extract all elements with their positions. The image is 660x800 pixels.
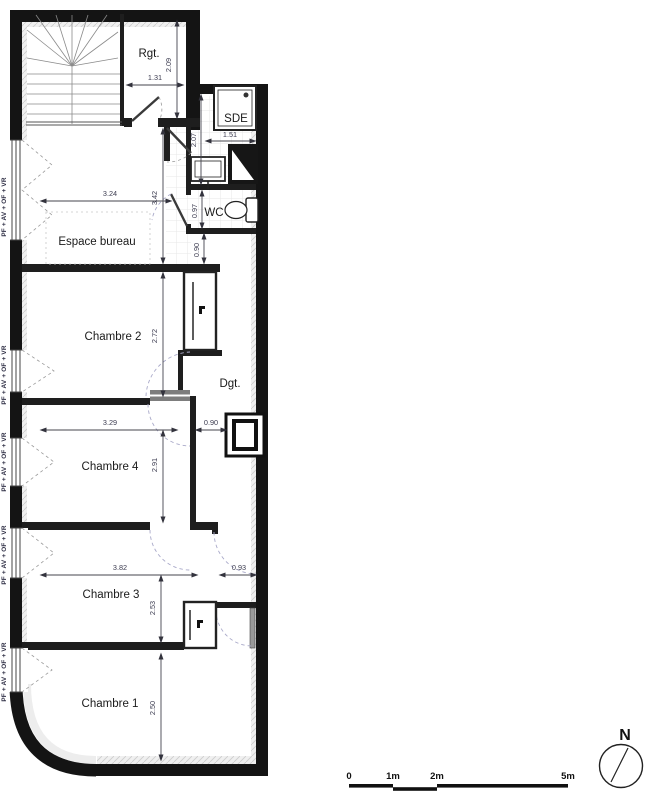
scale-segment bbox=[349, 784, 393, 788]
dim-text: 2.07 bbox=[189, 133, 198, 147]
door-swing-arc-rgt bbox=[159, 97, 162, 119]
scale-tick-2m: 2m bbox=[430, 771, 444, 782]
compass-needle bbox=[611, 748, 628, 782]
wall-rgt-bottom bbox=[158, 118, 200, 127]
room-label-wc: WC bbox=[204, 207, 223, 219]
north-letter: N bbox=[619, 727, 631, 744]
room-label-sde: SDE bbox=[224, 113, 248, 125]
dimension-hall-mid: 0.90 bbox=[198, 418, 224, 430]
scale-tick-0: 0 bbox=[346, 771, 351, 782]
dim-text: 0.90 bbox=[192, 243, 201, 257]
wall-wc-jamb-top bbox=[186, 184, 191, 195]
wall-chambre4-bottom bbox=[22, 522, 150, 530]
shower-drain-icon bbox=[244, 93, 249, 98]
wall-rgt-right bbox=[186, 10, 200, 130]
dimension-chambre3-height: 2.53 bbox=[148, 578, 161, 640]
dimension-rgt-width: 1.31 bbox=[129, 73, 181, 85]
dim-text: 1.31 bbox=[148, 73, 162, 82]
dimension-chambre4-width: 3.29 bbox=[43, 418, 175, 430]
window-chambre3 bbox=[9, 528, 54, 578]
dim-text: 2.72 bbox=[150, 329, 159, 343]
window-spec-label: PF + AV + OF + VR bbox=[1, 432, 8, 492]
dim-text: 1.51 bbox=[223, 130, 237, 139]
dim-text: 2.91 bbox=[150, 458, 159, 472]
scale-tick-5m: 5m bbox=[561, 771, 575, 782]
wall-rgt-door-jamb bbox=[124, 118, 132, 127]
room-label-chambre3: Chambre 3 bbox=[83, 589, 140, 601]
door-swing-arc-chambre3 bbox=[150, 530, 190, 570]
dim-text: 3.24 bbox=[103, 189, 117, 198]
dim-text: 2.09 bbox=[164, 58, 173, 72]
stairs bbox=[26, 14, 124, 126]
wall-chambre2-top bbox=[22, 264, 220, 272]
dimension-chambre4-height: 2.91 bbox=[150, 433, 163, 520]
wall-top bbox=[10, 10, 200, 22]
room-label-bureau: Espace bureau bbox=[58, 236, 135, 248]
room-label-chambre2: Chambre 2 bbox=[85, 331, 142, 343]
scale-segment bbox=[393, 787, 437, 791]
north-compass-icon: N bbox=[600, 727, 643, 788]
room-label-rgt: Rgt. bbox=[138, 48, 159, 60]
dimension-chambre3-width: 3.82 bbox=[43, 563, 195, 575]
dim-text: 3.29 bbox=[103, 418, 117, 427]
compass-circle bbox=[600, 745, 643, 788]
closet-chambre3 bbox=[184, 602, 216, 648]
door-leaf-chambre1 bbox=[250, 608, 255, 648]
window-spec-label: PF + AV + OF + VR bbox=[1, 177, 8, 237]
dimension-chambre1-height: 2.50 bbox=[148, 656, 161, 758]
window-bureau bbox=[9, 140, 52, 240]
closet-chambre2 bbox=[184, 272, 216, 350]
dim-text: 3.82 bbox=[113, 563, 127, 572]
door-swing-arc-chambre1 bbox=[216, 610, 252, 646]
floor-plan-page: 1.31 2.09 2.07 1.51 0.97 3.24 3.42 0.90 bbox=[0, 0, 660, 800]
window-chambre2 bbox=[9, 350, 54, 392]
wall-dgt-left bbox=[190, 396, 196, 530]
dimension-rgt-height: 2.09 bbox=[164, 23, 177, 116]
scale-tick-1m: 1m bbox=[386, 771, 400, 782]
window-chambre4 bbox=[9, 438, 54, 486]
dimension-hall-top: 0.90 bbox=[192, 236, 204, 261]
wall-corridor bbox=[164, 127, 170, 161]
window-spec-label: PF + AV + OF + VR bbox=[1, 525, 8, 585]
dim-text: 2.53 bbox=[148, 601, 157, 615]
washer-unit bbox=[228, 144, 258, 184]
wall-chambre1-entry bbox=[216, 602, 256, 608]
stair-divider-wall bbox=[120, 14, 124, 126]
scale-segment bbox=[437, 784, 568, 788]
wall-bottom bbox=[88, 764, 268, 776]
wall-chambre2-chambre4 bbox=[22, 398, 150, 405]
window-spec-labels: PF + AV + OF + VR PF + AV + OF + VR PF +… bbox=[1, 177, 8, 702]
door-swing-arc-chambre4 bbox=[148, 404, 190, 446]
sliding-door-panel-1 bbox=[150, 390, 190, 395]
wall-chambre3-jamb bbox=[212, 522, 218, 534]
dim-text: 0.90 bbox=[204, 418, 218, 427]
room-label-chambre4: Chambre 4 bbox=[82, 461, 139, 473]
dim-text: 2.50 bbox=[148, 701, 157, 715]
sliding-door-panel-2 bbox=[150, 397, 190, 402]
room-label-dgt: Dgt. bbox=[219, 378, 240, 390]
dim-text: 3.42 bbox=[150, 191, 159, 205]
dim-text: 0.97 bbox=[190, 204, 199, 218]
wall-chambre3-bottom bbox=[22, 642, 184, 650]
window-spec-label: PF + AV + OF + VR bbox=[1, 345, 8, 405]
door-leaf-rgt bbox=[132, 97, 159, 121]
dimension-bureau-height: 3.42 bbox=[150, 131, 163, 261]
room-label-chambre1: Chambre 1 bbox=[82, 698, 139, 710]
scale-bar: 0 1m 2m 5m bbox=[346, 771, 575, 791]
door-swing-arc-chambre2 bbox=[146, 352, 190, 396]
window-spec-label: PF + AV + OF + VR bbox=[1, 642, 8, 702]
wall-sde-wc bbox=[186, 184, 256, 190]
wall-chambre2-dgt bbox=[178, 356, 183, 392]
wall-wc-bottom bbox=[186, 228, 256, 234]
floor-plan-drawing: 1.31 2.09 2.07 1.51 0.97 3.24 3.42 0.90 bbox=[0, 0, 660, 800]
duct-shaft bbox=[226, 414, 264, 456]
dim-text: 0.93 bbox=[232, 563, 246, 572]
